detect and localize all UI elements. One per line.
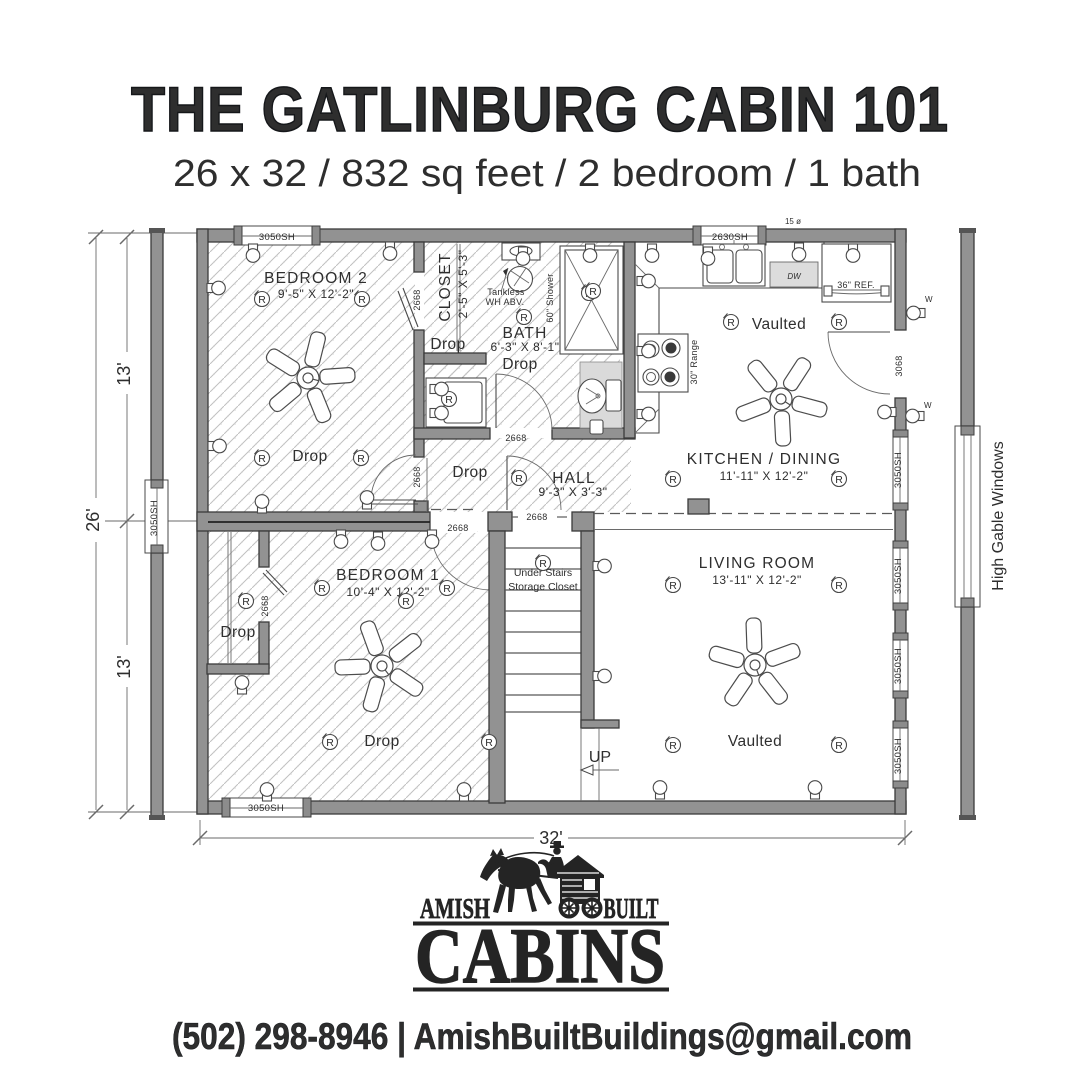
svg-text:Drop: Drop [364, 733, 399, 750]
svg-text:3068: 3068 [894, 355, 904, 376]
svg-text:3050SH: 3050SH [149, 500, 160, 536]
svg-text:2668: 2668 [412, 466, 422, 487]
svg-text:3050SH: 3050SH [893, 558, 904, 594]
svg-text:3050SH: 3050SH [893, 452, 904, 488]
svg-text:3050SH: 3050SH [259, 232, 295, 243]
svg-text:6'-3" X 8'-1": 6'-3" X 8'-1" [491, 340, 560, 354]
svg-text:UP: UP [589, 749, 611, 766]
svg-text:WH ABV.: WH ABV. [486, 297, 525, 307]
svg-text:3050SH: 3050SH [893, 648, 904, 684]
svg-text:Tankless: Tankless [487, 287, 525, 297]
svg-text:THE GATLINBURG CABIN 101: THE GATLINBURG CABIN 101 [131, 75, 949, 145]
svg-text:10'-4" X 12'-2": 10'-4" X 12'-2" [346, 585, 429, 599]
svg-text:LIVING ROOM: LIVING ROOM [699, 555, 816, 572]
svg-text:2668: 2668 [260, 595, 270, 616]
svg-text:Drop: Drop [502, 356, 537, 373]
svg-text:60" Shower: 60" Shower [545, 273, 555, 322]
svg-text:9'-3" X 3'-3": 9'-3" X 3'-3" [539, 485, 608, 499]
svg-text:DW: DW [787, 272, 802, 281]
svg-text:CABINS: CABINS [415, 912, 665, 999]
svg-text:BEDROOM 1: BEDROOM 1 [336, 567, 440, 584]
svg-text:15 ø: 15 ø [785, 217, 801, 226]
svg-text:(502) 298-8946 | AmishBuiltBui: (502) 298-8946 | AmishBuiltBuildings@gma… [172, 1016, 912, 1058]
svg-text:Drop: Drop [452, 464, 487, 481]
svg-text:2630SH: 2630SH [712, 232, 748, 243]
svg-text:13': 13' [114, 362, 134, 385]
svg-text:30" Range: 30" Range [689, 340, 699, 385]
svg-text:36" REF.: 36" REF. [837, 280, 875, 290]
svg-text:W: W [924, 401, 932, 410]
svg-text:3050SH: 3050SH [248, 803, 284, 814]
svg-text:11'-11" X 12'-2": 11'-11" X 12'-2" [720, 469, 809, 483]
svg-text:KITCHEN / DINING: KITCHEN / DINING [687, 451, 841, 468]
svg-text:2668: 2668 [447, 523, 468, 533]
svg-text:3050SH: 3050SH [893, 738, 904, 774]
svg-text:High Gable Windows: High Gable Windows [990, 441, 1007, 590]
svg-text:2'-5" X 5'-3": 2'-5" X 5'-3" [456, 250, 470, 319]
svg-text:Drop: Drop [220, 624, 255, 641]
svg-text:2668: 2668 [412, 289, 422, 310]
svg-text:W: W [925, 295, 933, 304]
svg-text:Drop: Drop [430, 336, 465, 353]
svg-text:9'-5" X 12'-2": 9'-5" X 12'-2" [278, 287, 354, 301]
svg-text:26 x 32 / 832 sq feet / 2 bedr: 26 x 32 / 832 sq feet / 2 bedroom / 1 ba… [173, 153, 921, 195]
svg-text:26': 26' [83, 508, 103, 531]
svg-text:13'-11" X 12'-2": 13'-11" X 12'-2" [712, 573, 802, 587]
svg-text:Vaulted: Vaulted [752, 316, 806, 333]
svg-text:Storage Closet: Storage Closet [508, 581, 578, 593]
svg-text:2668: 2668 [526, 512, 547, 522]
svg-text:CLOSET: CLOSET [437, 252, 454, 321]
svg-text:13': 13' [114, 655, 134, 678]
svg-text:2668: 2668 [505, 433, 526, 443]
svg-text:Vaulted: Vaulted [728, 733, 782, 750]
svg-text:BEDROOM 2: BEDROOM 2 [264, 270, 368, 287]
svg-text:Under Stairs: Under Stairs [514, 567, 572, 579]
svg-text:Drop: Drop [292, 448, 327, 465]
